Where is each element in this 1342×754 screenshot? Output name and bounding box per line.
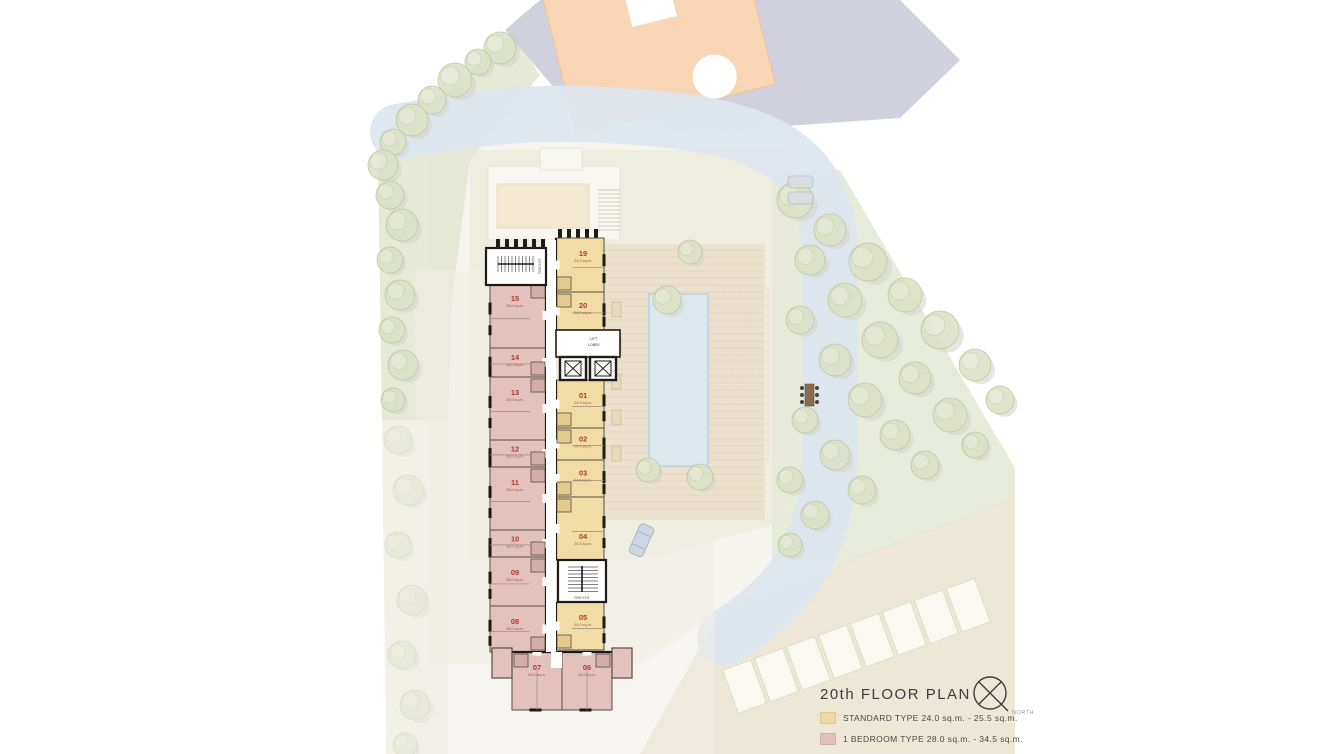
fire-exit-label-top: FIRE EXIT [538,258,542,273]
north-compass: NORTH [962,664,1052,734]
unit-number-label: 20 [579,301,587,310]
unit-11: 1128.0 sq.m. [489,467,547,530]
unit-09: 0928.0 sq.m. [489,557,547,606]
floor-plan-page: 1924.0 sq.m.2024.0 sq.m.0124.0 sq.m.0224… [0,0,1342,754]
unit-01: 0124.0 sq.m. [556,380,606,428]
unit-20: 2024.0 sq.m. [556,292,606,330]
unit-number-label: 12 [511,444,519,453]
unit-area-label: 28.0 sq.m. [506,488,524,492]
unit-number-label: 03 [579,469,587,478]
unit-08: 0828.0 sq.m. [489,606,547,652]
legend-item-1bedroom: 1 BEDROOM TYPE 28.0 sq.m. - 34.5 sq.m. [820,733,1023,745]
unit-number-label: 11 [511,478,519,487]
unit-04: 0425.5 sq.m. [556,497,606,560]
unit-area-label: 25.5 sq.m. [574,542,592,546]
fire-exit-label-mid: FIRE EXIT [574,596,589,600]
unit-number-label: 09 [511,568,519,577]
unit-area-label: 24.0 sq.m. [574,259,592,263]
unit-number-label: 08 [511,617,519,626]
unit-number-label: 10 [511,534,519,543]
unit-area-label: 28.0 sq.m. [506,578,524,582]
tree-icon [986,386,1018,417]
unit-area-label: 28.0 sq.m. [506,544,524,548]
corridor [546,240,556,652]
unit-area-label: 28.0 sq.m. [506,627,524,631]
lift-lobby-label-1: LIFT [590,337,598,341]
unit-15: 1528.0 sq.m. [489,283,547,348]
legend-label-1bedroom: 1 BEDROOM TYPE 28.0 sq.m. - 34.5 sq.m. [843,734,1023,744]
wing-left [492,648,512,678]
lift-lobby-label-2: LOBBY [588,343,601,347]
legend-swatch-1bedroom [820,733,836,745]
unit-area-label: 24.0 sq.m. [574,401,592,405]
legend-swatch-standard [820,712,836,724]
unit-number-label: 15 [511,294,519,303]
unit-number-label: 14 [511,353,520,362]
fire-exit-stair-top: FIRE EXIT [486,248,546,285]
lift-shaft-icon [560,357,586,380]
unit-number-label: 06 [583,663,591,672]
unit-area-label: 34.5 sq.m. [578,673,596,677]
unit-area-label: 28.0 sq.m. [506,398,524,402]
unit-02: 0224.0 sq.m. [556,428,606,460]
unit-number-label: 07 [533,663,541,672]
unit-number-label: 05 [579,613,587,622]
unit-area-label: 24.0 sq.m. [574,311,592,315]
unit-area-label: 28.0 sq.m. [506,454,524,458]
unit-13: 1328.0 sq.m. [489,377,547,440]
unit-number-label: 01 [579,391,587,400]
unit-03: 0324.0 sq.m. [556,460,606,497]
unit-number-label: 02 [579,434,587,443]
unit-10: 1028.0 sq.m. [489,530,547,558]
unit-14: 1428.0 sq.m. [489,348,547,377]
site-layer [368,0,1018,754]
unit-area-label: 34.5 sq.m. [528,673,546,677]
unit-area-label: 24.0 sq.m. [574,444,592,448]
unit-12: 1228.0 sq.m. [489,440,547,468]
corridor-stub [551,652,562,668]
compass-needle-icon [979,682,1008,711]
unit-area-label: 28.0 sq.m. [506,304,524,308]
unit-area-label: 24.0 sq.m. [574,479,592,483]
unit-number-label: 04 [579,532,588,541]
unit-area-label: 24.0 sq.m. [574,623,592,627]
tree-icon [959,349,995,384]
fire-exit-stair-mid: FIRE EXIT [558,560,606,602]
unit-area-label: 28.0 sq.m. [506,363,524,367]
unit-number-label: 19 [579,249,587,258]
unit-06: 0634.5 sq.m. [562,652,612,712]
north-label: NORTH [1012,710,1034,716]
unit-19: 1924.0 sq.m. [556,238,606,292]
pool-deck [600,244,768,520]
wing-right [612,648,632,678]
unit-number-label: 13 [511,388,519,397]
floor-plan-svg: 1924.0 sq.m.2024.0 sq.m.0124.0 sq.m.0224… [0,0,1342,754]
lift-shaft-icon [590,357,616,380]
swimming-pool [649,294,708,466]
unit-05: 0524.0 sq.m. [556,602,606,650]
garden-table-icon [800,384,819,406]
